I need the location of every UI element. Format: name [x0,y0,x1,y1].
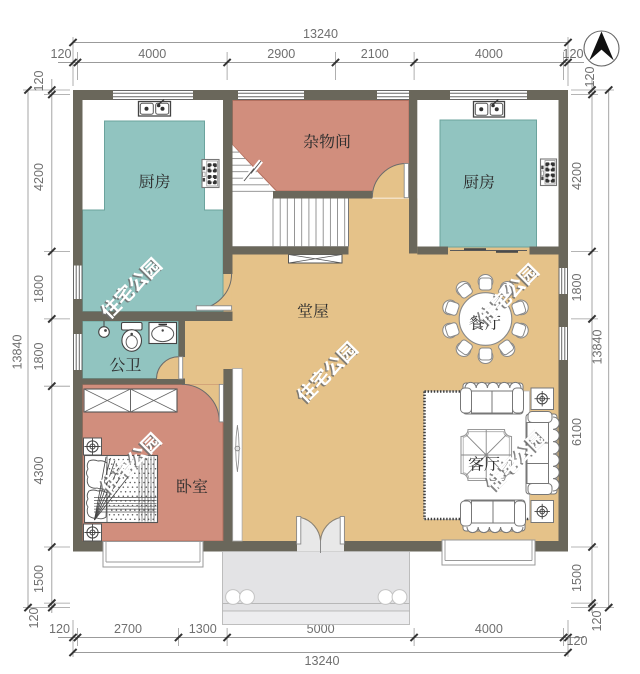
svg-text:4300: 4300 [32,456,46,484]
svg-text:120: 120 [566,634,587,648]
svg-text:120: 120 [590,610,604,631]
svg-text:120: 120 [50,47,71,61]
svg-text:1800: 1800 [32,342,46,370]
svg-text:4200: 4200 [570,162,584,190]
svg-text:1800: 1800 [570,273,584,301]
svg-text:120: 120 [562,47,583,61]
svg-text:2100: 2100 [361,47,389,61]
svg-text:6100: 6100 [570,418,584,446]
svg-text:13240: 13240 [304,654,339,668]
svg-text:13240: 13240 [303,27,338,41]
svg-text:1300: 1300 [189,622,217,636]
svg-text:4000: 4000 [475,47,503,61]
svg-text:4000: 4000 [475,622,503,636]
svg-text:4200: 4200 [32,163,46,191]
svg-text:120: 120 [49,622,70,636]
svg-text:13840: 13840 [11,334,25,369]
svg-text:120: 120 [32,70,46,91]
svg-text:2900: 2900 [267,47,295,61]
svg-text:120: 120 [27,607,41,628]
svg-text:1500: 1500 [32,565,46,593]
svg-text:1800: 1800 [32,275,46,303]
svg-text:2700: 2700 [114,622,142,636]
svg-text:120: 120 [583,66,597,87]
svg-text:4000: 4000 [138,47,166,61]
svg-text:13840: 13840 [591,329,605,364]
svg-text:1500: 1500 [570,564,584,592]
